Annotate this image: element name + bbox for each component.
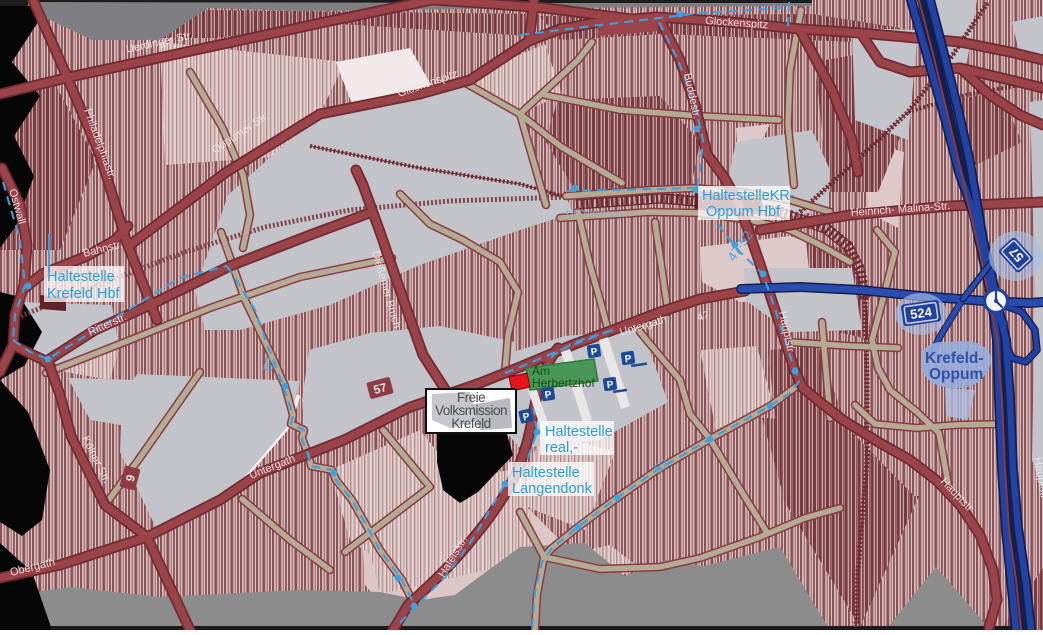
- svg-text:Oppum Hbf: Oppum Hbf: [706, 204, 781, 220]
- svg-text:Haltestelle: Haltestelle: [47, 269, 115, 285]
- svg-text:Herbertzhof: Herbertzhof: [532, 376, 595, 390]
- svg-text:Haltestelle: Haltestelle: [512, 465, 580, 481]
- svg-text:Haltestelle: Haltestelle: [545, 424, 613, 440]
- svg-text:524: 524: [909, 304, 933, 322]
- svg-text:Oppum: Oppum: [929, 366, 983, 383]
- svg-text:Krefeld-: Krefeld-: [925, 350, 984, 367]
- svg-text:52: 52: [260, 356, 277, 373]
- svg-text:Krefeld: Krefeld: [451, 416, 490, 431]
- svg-text:Langendonk: Langendonk: [512, 481, 593, 497]
- svg-text:HaltestelleKR-: HaltestelleKR-: [702, 188, 795, 204]
- svg-text:Hochfelderstr.: Hochfelderstr.: [566, 207, 628, 220]
- svg-text:real,-: real,-: [545, 440, 578, 456]
- svg-text:Krefeld Hbf: Krefeld Hbf: [47, 286, 121, 302]
